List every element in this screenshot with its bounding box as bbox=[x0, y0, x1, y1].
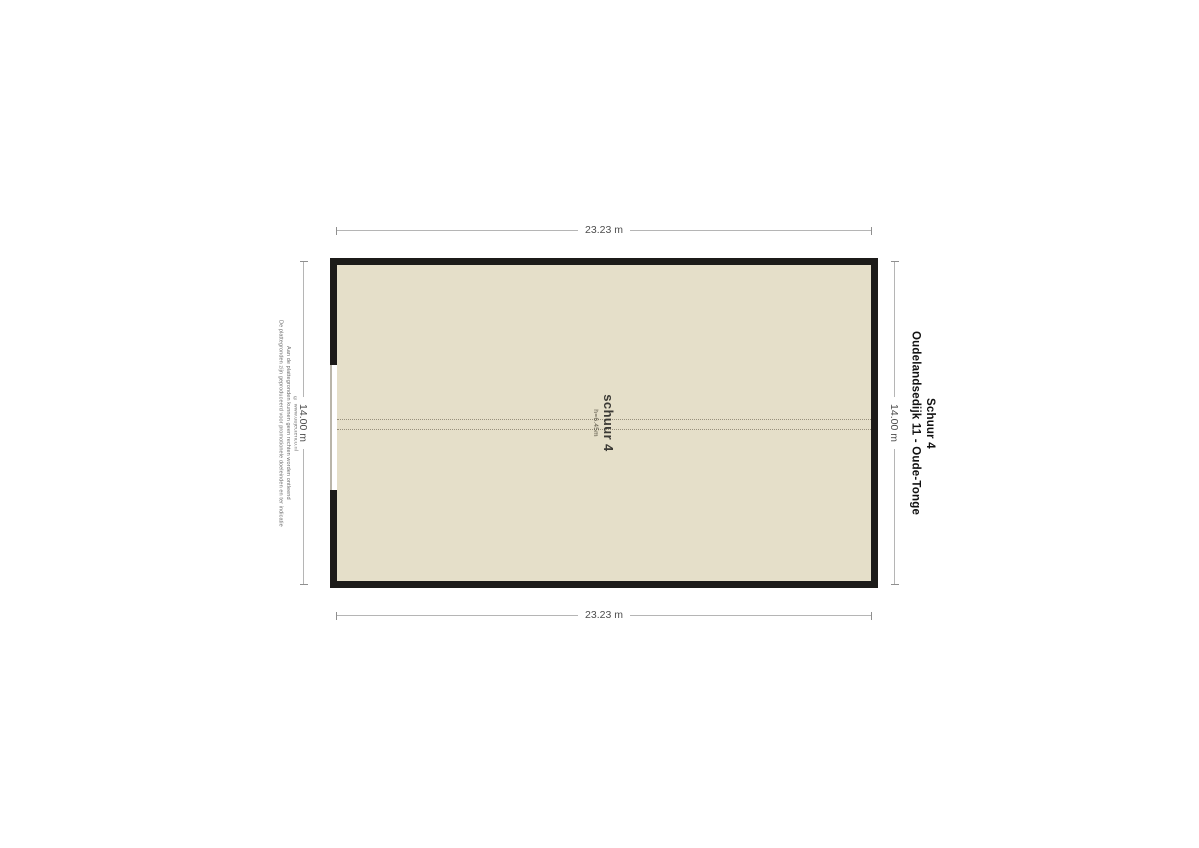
page-title-text: Oudelandsedijk 11 - Oude-Tonge Schuur 4 bbox=[908, 331, 937, 515]
dimension-line-bottom: 23.23 m bbox=[336, 615, 872, 616]
room-label: h=6.45m schuur 4 bbox=[592, 394, 616, 451]
page-title: Oudelandsedijk 11 - Oude-Tonge Schuur 4 bbox=[908, 258, 937, 588]
disclaimer-line-2: Aan de plattegronden kunnen geen rechten… bbox=[283, 320, 290, 527]
wall-opening-line bbox=[330, 365, 332, 490]
page-title-floor: Schuur 4 bbox=[922, 331, 936, 515]
dimension-line-left: 14.00 m bbox=[303, 261, 304, 585]
dimension-label-right: 14.00 m bbox=[888, 397, 900, 449]
room-height-label: h=6.45m bbox=[592, 409, 599, 437]
dimension-label-top: 23.23 m bbox=[578, 224, 630, 236]
dimension-line-top: 23.23 m bbox=[336, 230, 872, 231]
floor-plan-room: h=6.45m schuur 4 bbox=[330, 258, 878, 588]
page-title-address: Oudelandsedijk 11 - Oude-Tonge bbox=[908, 331, 922, 515]
wall-opening bbox=[330, 365, 337, 490]
disclaimer: De plattegronden zijn geproduceerd voor … bbox=[276, 258, 298, 588]
dimension-label-left: 14.00 m bbox=[297, 397, 309, 449]
floorplan-page: De plattegronden zijn geproduceerd voor … bbox=[0, 0, 1199, 848]
disclaimer-line-1: De plattegronden zijn geproduceerd voor … bbox=[276, 320, 283, 527]
dimension-label-bottom: 23.23 m bbox=[578, 609, 630, 621]
disclaimer-text: De plattegronden zijn geproduceerd voor … bbox=[276, 320, 298, 527]
dimension-line-right: 14.00 m bbox=[894, 261, 895, 585]
room-name-label: schuur 4 bbox=[601, 394, 616, 451]
